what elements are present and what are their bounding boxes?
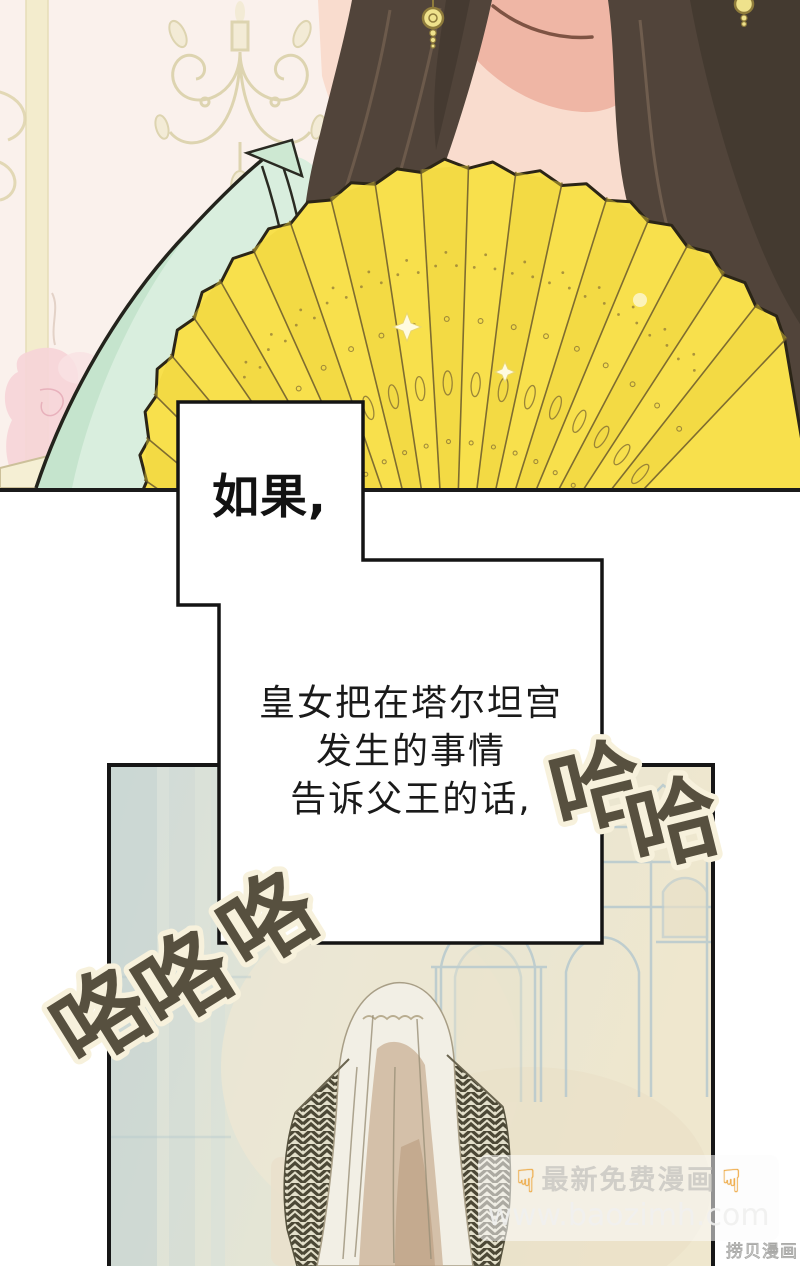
hand-pointing-down-icon: ☟: [722, 1165, 741, 1197]
bubble-intro-text: 如果,: [212, 472, 382, 524]
top-art: [0, 0, 800, 488]
comic-page[interactable]: 如果, 皇女把在塔尔坦宫 发生的事情 告诉父王的话, 哈 哈 咯 咯 咯 ☟ 最…: [0, 0, 800, 1266]
hand-pointing-down-icon: ☟: [516, 1165, 535, 1197]
watermark-url-text: www.baozimh.com: [487, 1199, 769, 1232]
watermark: ☟ 最新免费漫画 ☟ www.baozimh.com: [478, 1155, 779, 1241]
bubble-line-1: 皇女把在塔尔坦宫: [219, 680, 603, 728]
bubble-body-text: 皇女把在塔尔坦宫 发生的事情 告诉父王的话,: [219, 680, 603, 824]
bubble-line-3: 告诉父王的话,: [219, 776, 603, 824]
watermark-banner-text: 最新免费漫画: [542, 1167, 716, 1194]
corner-credit: 捞贝漫画: [726, 1237, 798, 1262]
bubble-line-2: 发生的事情: [219, 728, 603, 776]
panel-top: [0, 0, 800, 492]
